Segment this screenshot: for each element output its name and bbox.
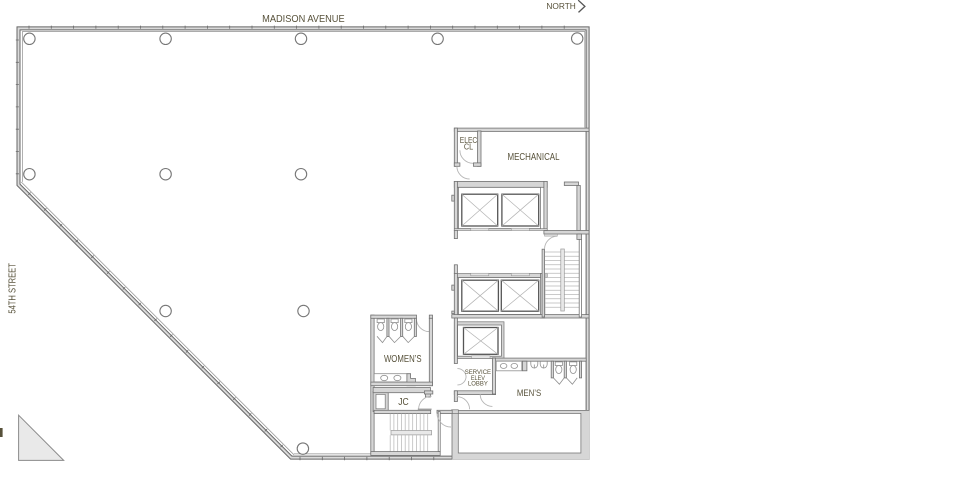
svg-text:LOBBY: LOBBY <box>468 381 488 388</box>
svg-text:MADISON AVENUE: MADISON AVENUE <box>262 14 345 25</box>
svg-text:NORTH: NORTH <box>546 1 576 11</box>
svg-text:WOMEN’S: WOMEN’S <box>384 354 422 365</box>
svg-text:54TH STREET: 54TH STREET <box>7 263 18 314</box>
svg-text:JC: JC <box>398 397 409 408</box>
svg-text:MEN’S: MEN’S <box>517 388 541 398</box>
svg-text:CL: CL <box>464 142 474 151</box>
svg-text:MECHANICAL: MECHANICAL <box>508 152 560 163</box>
